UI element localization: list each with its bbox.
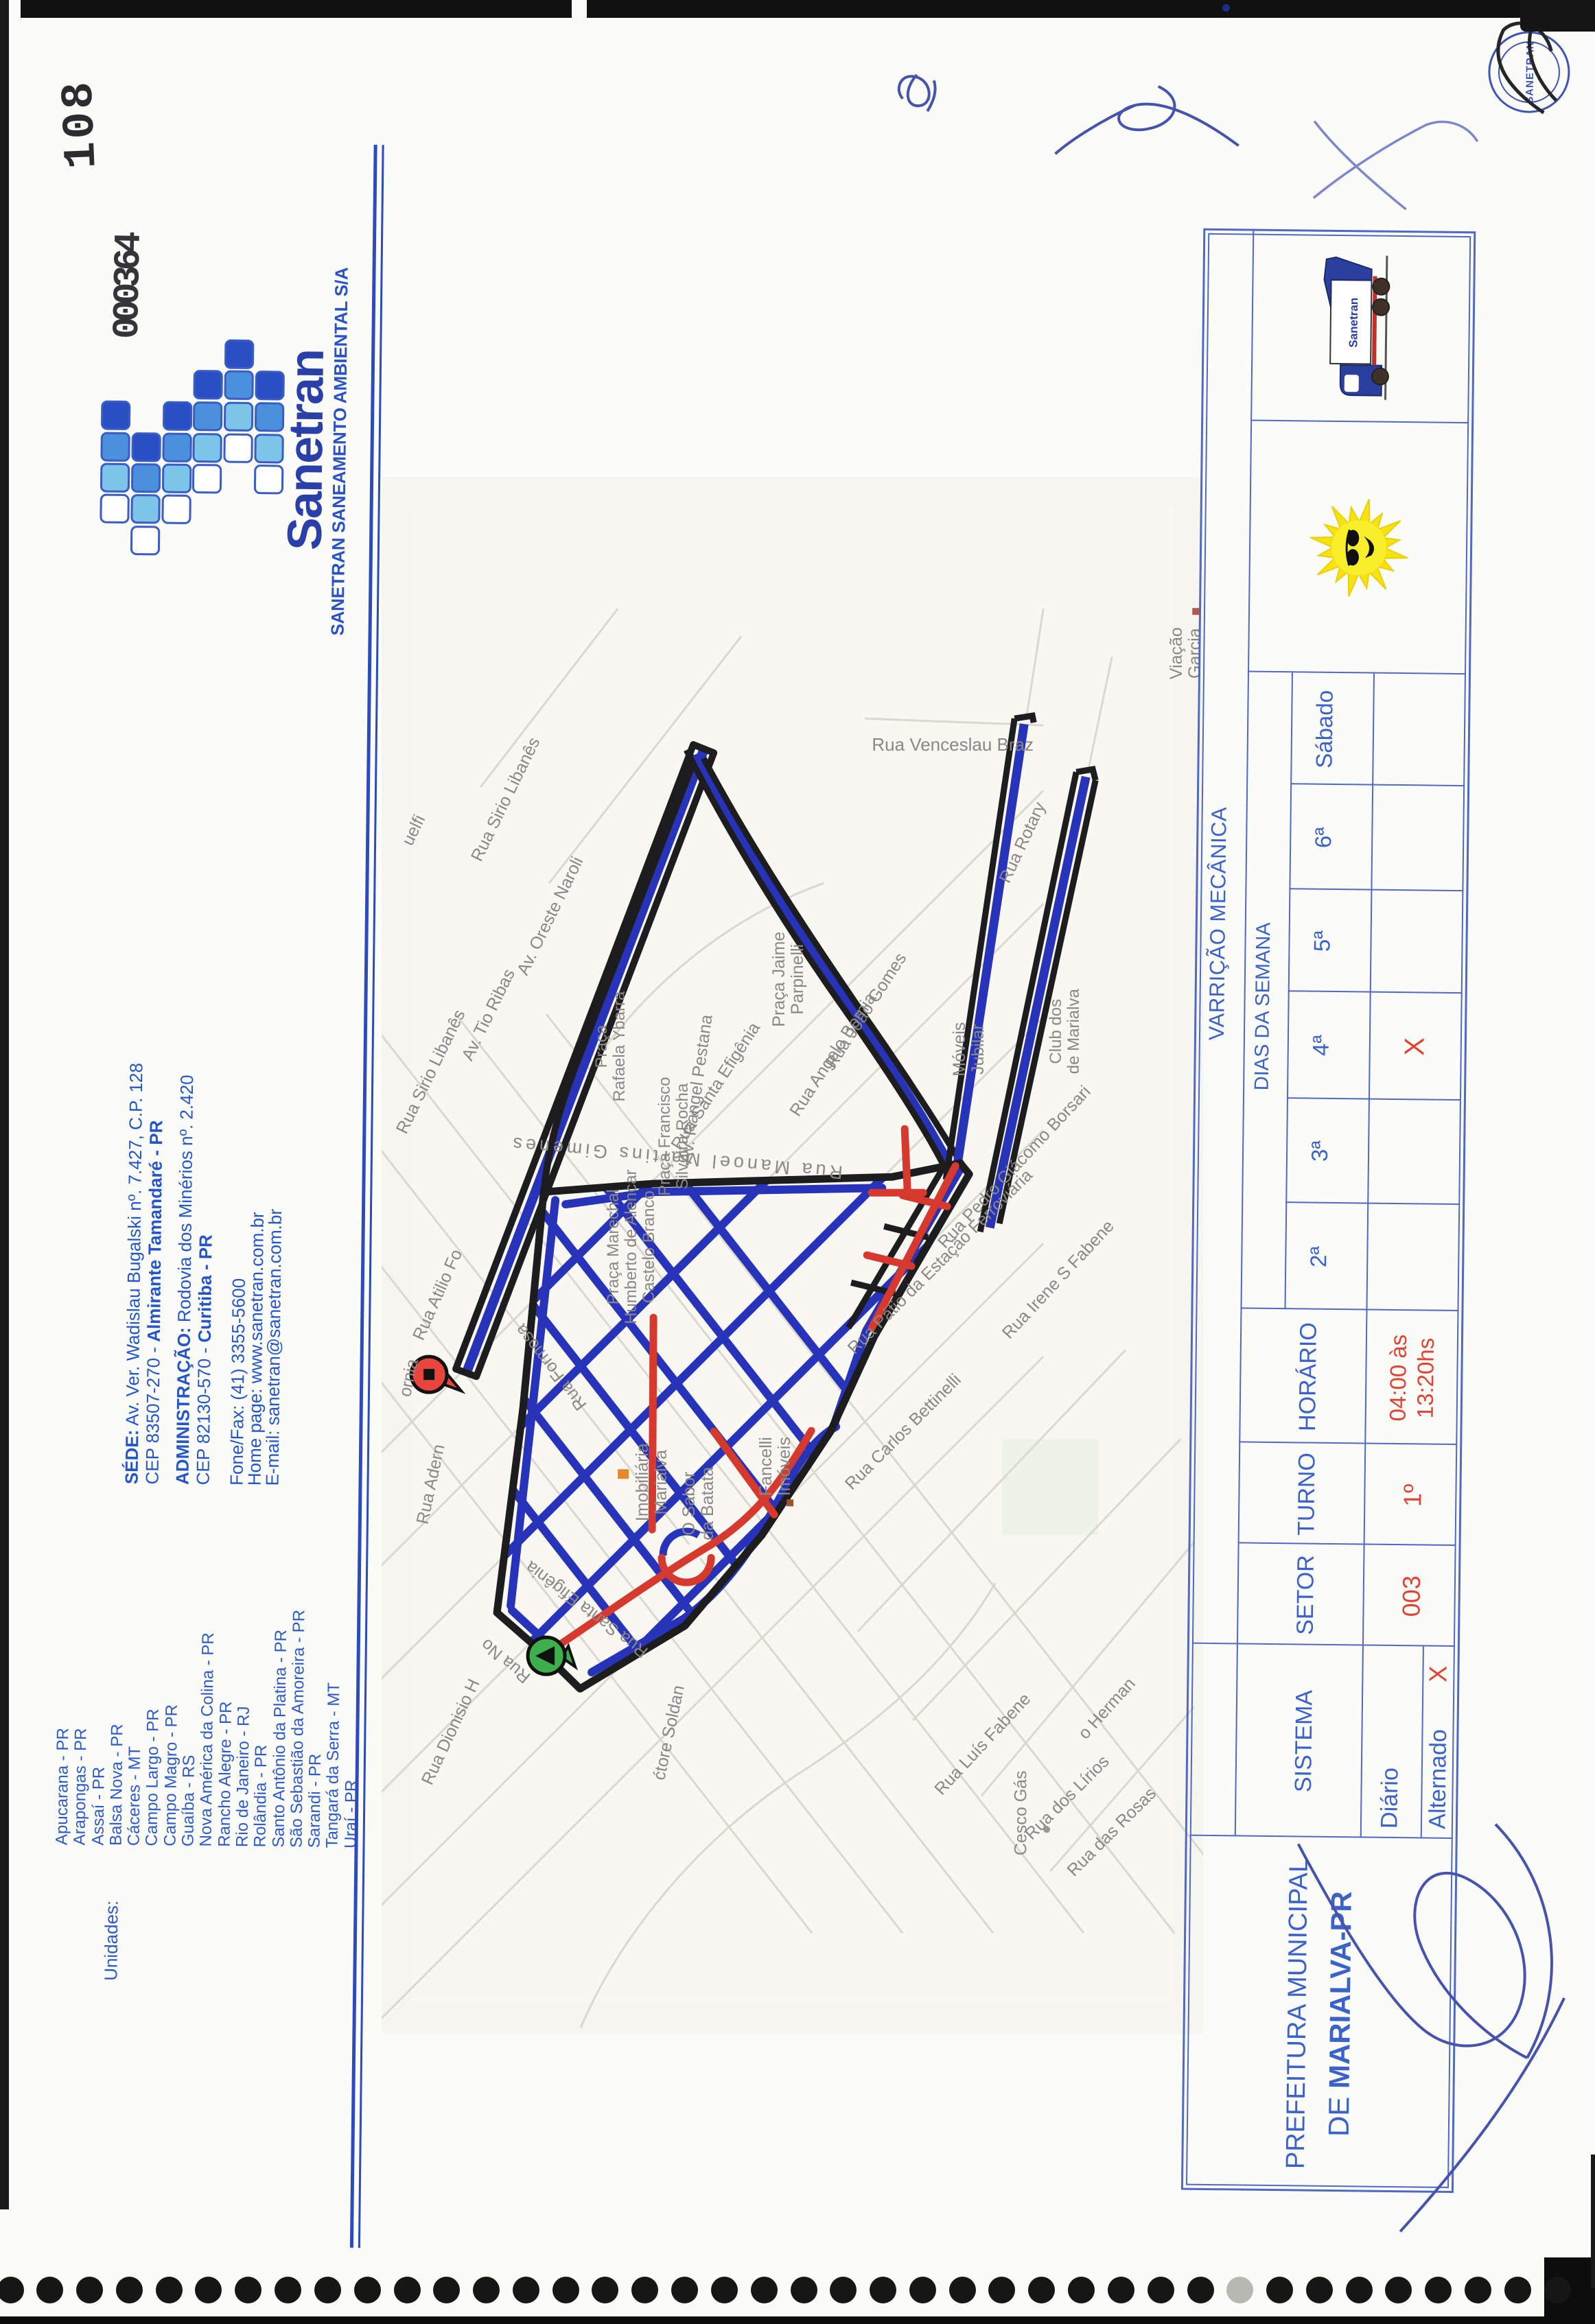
svg-text:Sanetran: Sanetran [1347, 298, 1360, 348]
